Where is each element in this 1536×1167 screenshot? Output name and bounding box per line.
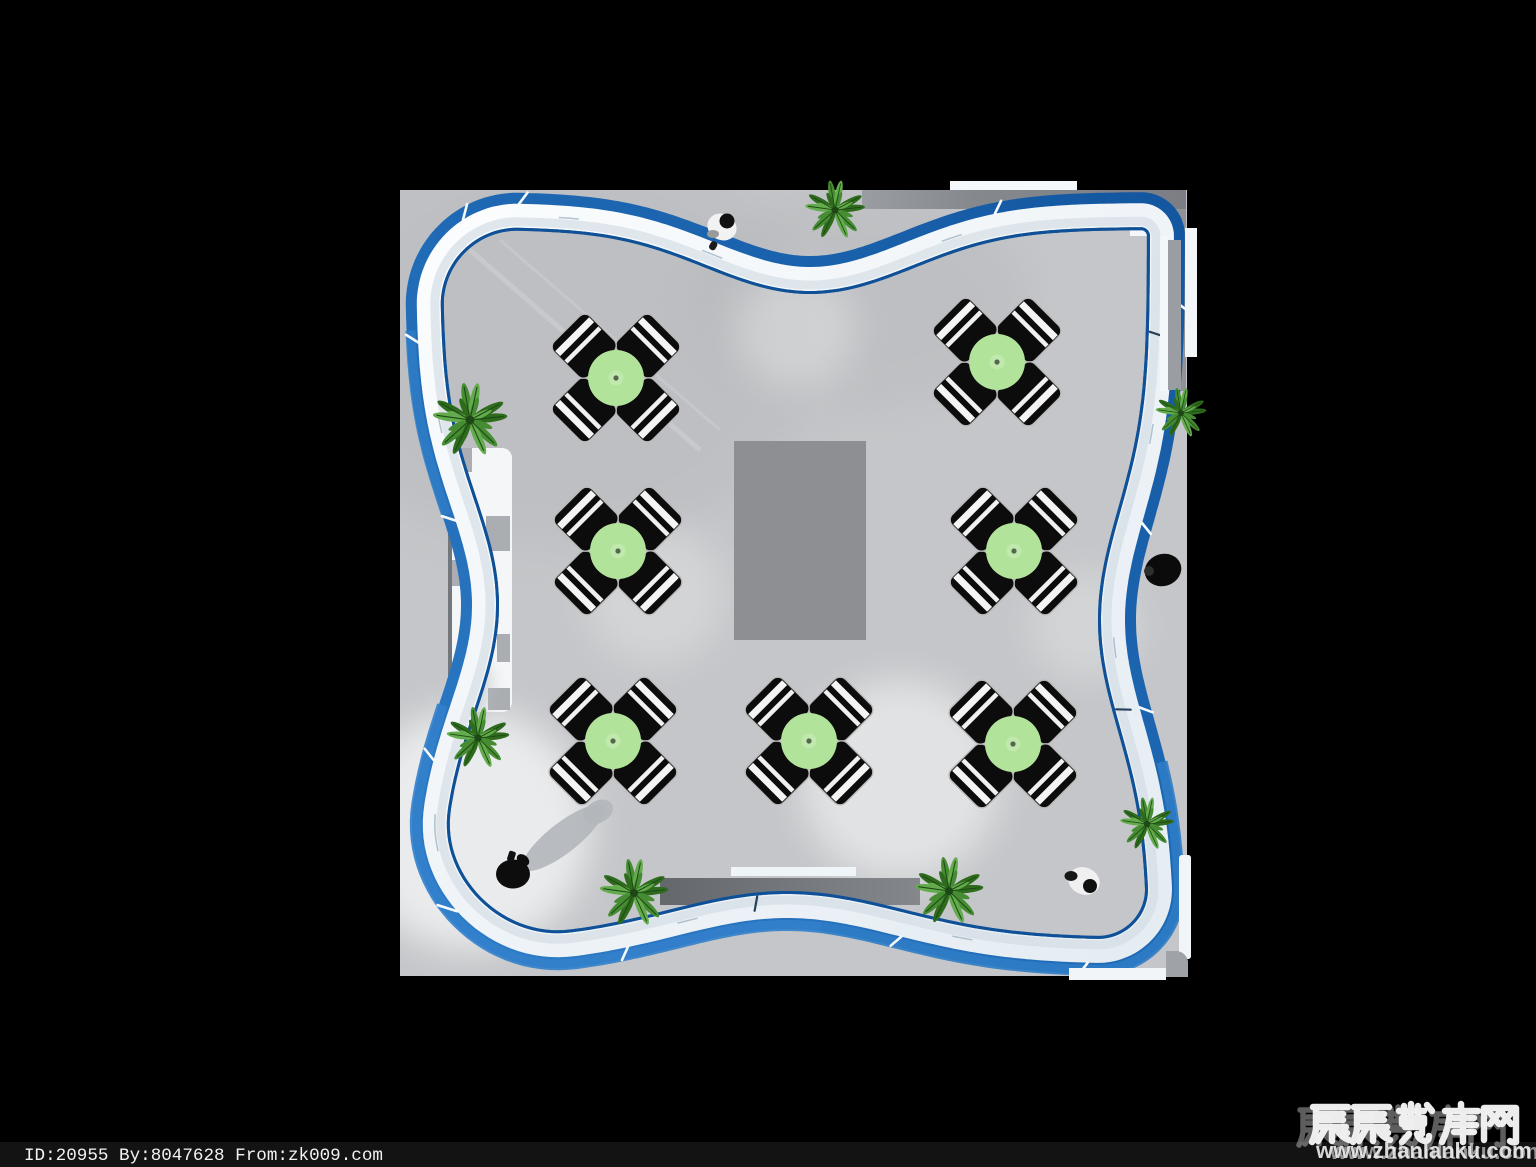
- svg-text:ID:20955 By:8047628 From:zk009: ID:20955 By:8047628 From:zk009.com: [24, 1146, 383, 1166]
- svg-text:www.zhanlanku.com: www.zhanlanku.com: [1315, 1138, 1532, 1163]
